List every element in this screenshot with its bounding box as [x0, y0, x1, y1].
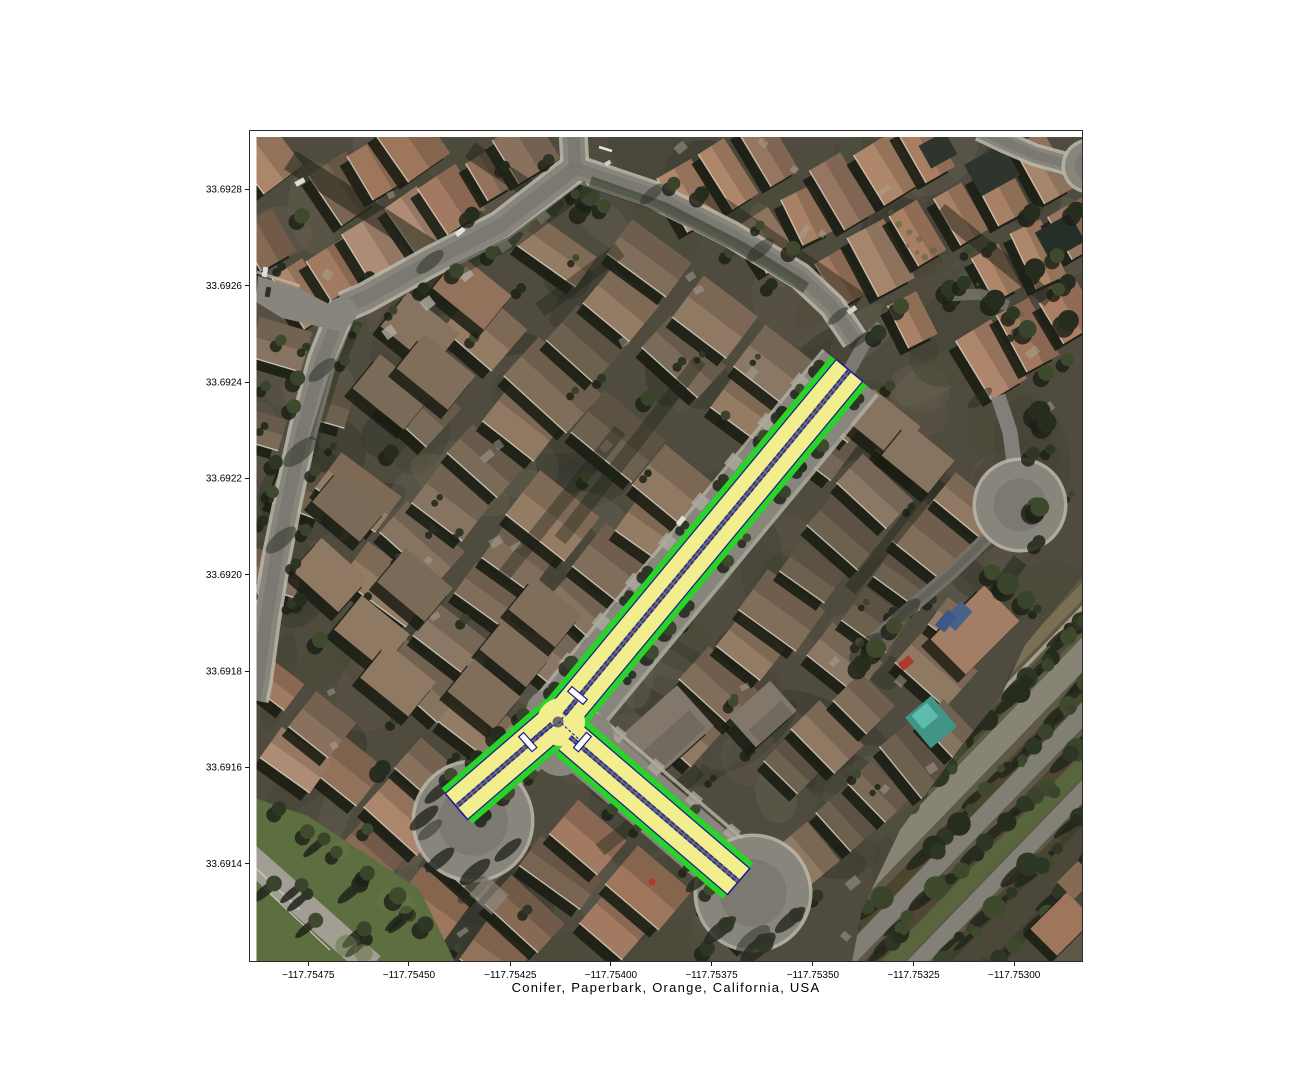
- svg-text:33.6916: 33.6916: [206, 763, 243, 774]
- svg-text:33.6924: 33.6924: [206, 378, 243, 389]
- svg-text:33.6922: 33.6922: [206, 474, 243, 485]
- svg-text:33.6918: 33.6918: [206, 667, 243, 678]
- svg-text:−117.75325: −117.75325: [887, 970, 940, 981]
- svg-text:33.6914: 33.6914: [206, 859, 243, 870]
- svg-text:−117.75450: −117.75450: [383, 970, 436, 981]
- svg-text:−117.75300: −117.75300: [988, 970, 1041, 981]
- svg-text:33.6926: 33.6926: [206, 281, 243, 292]
- svg-text:−117.75475: −117.75475: [282, 970, 335, 981]
- svg-text:Conifer, Paperbark, Orange, Ca: Conifer, Paperbark, Orange, California, …: [512, 980, 821, 995]
- svg-text:33.6928: 33.6928: [206, 185, 243, 196]
- svg-text:33.6920: 33.6920: [206, 570, 243, 581]
